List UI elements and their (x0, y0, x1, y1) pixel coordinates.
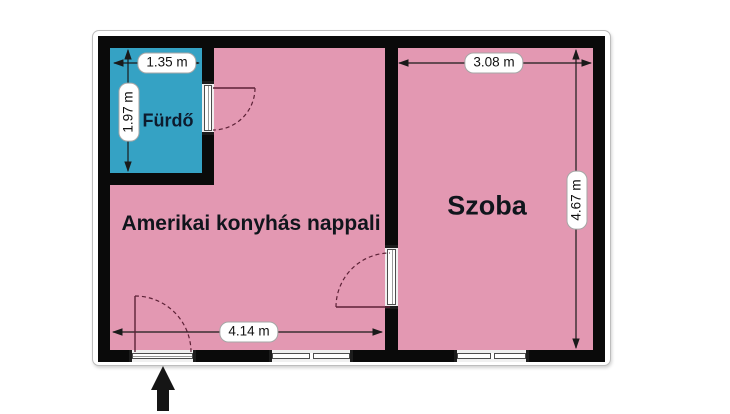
window-cap (526, 350, 529, 362)
window-cap (269, 350, 272, 362)
dim-bathroom-width: 1.35 m (137, 53, 196, 74)
bathroom-door (202, 82, 214, 134)
door-cap (202, 132, 214, 135)
bathroom-bottom-wall (110, 173, 214, 185)
dim-bedroom-height: 4.67 m (567, 170, 588, 229)
room-label-bathroom: Fürdő (143, 111, 194, 132)
entrance-arrow-icon (151, 366, 175, 411)
window-glass (457, 353, 526, 359)
window-glass (272, 353, 350, 359)
entrance-door-frame (132, 353, 193, 359)
door-cap (193, 350, 196, 362)
door-cap (202, 81, 214, 84)
door-cap (129, 350, 132, 362)
room-label-bedroom: Szoba (447, 191, 527, 222)
bedroom-door-frame (387, 249, 396, 305)
bathroom-door-frame (204, 85, 212, 131)
dim-bathroom-height: 1.97 m (119, 82, 140, 141)
window-cap (350, 350, 353, 362)
bedroom-window (455, 350, 528, 362)
room-label-living-room: Amerikai konyhás nappali (121, 212, 380, 236)
dim-bedroom-width: 3.08 m (464, 53, 523, 74)
dim-living-width: 4.14 m (219, 322, 278, 343)
bedroom-door-leaf-line (392, 250, 393, 304)
window-divider (490, 353, 495, 359)
door-cap (385, 306, 398, 309)
door-cap (385, 245, 398, 248)
floor-plan: Fürdő Amerikai konyhás nappali Szoba 1.3… (0, 0, 730, 414)
living-room-window (270, 350, 352, 362)
window-divider (309, 353, 314, 359)
entrance-door (130, 350, 195, 362)
bedroom-door (385, 246, 398, 308)
window-cap (454, 350, 457, 362)
entrance-door-leaf-line (133, 356, 192, 357)
bathroom-door-leaf-line (208, 86, 209, 130)
